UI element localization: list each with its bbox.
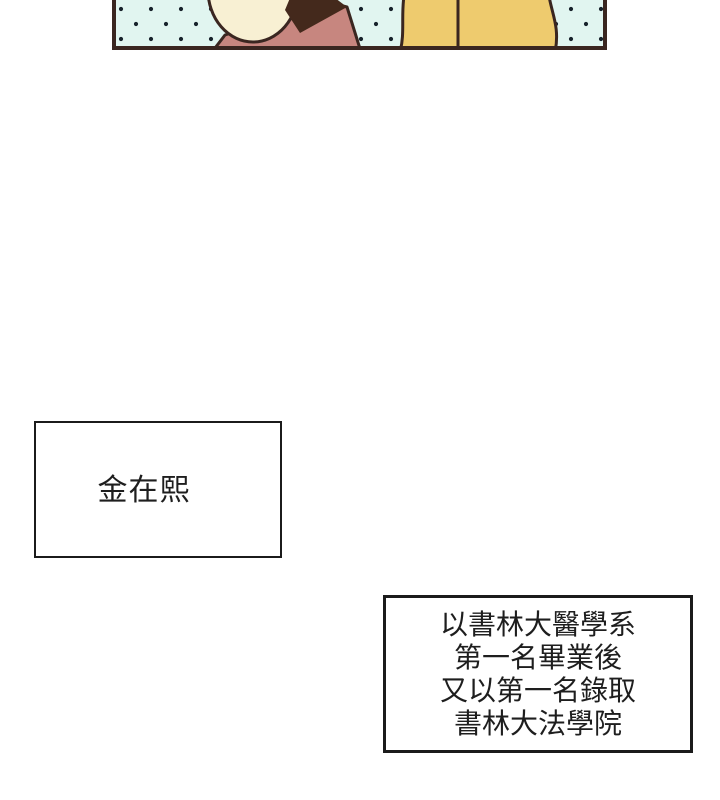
name-caption-box: 金在熙 bbox=[34, 421, 282, 558]
comic-page: 金在熙 以書林大醫學系 第一名畢業後 又以第一名錄取 書林大法學院 bbox=[0, 0, 720, 800]
panel-border-right bbox=[603, 0, 607, 50]
character-name-text: 金在熙 bbox=[98, 465, 191, 509]
panel-border-bottom bbox=[112, 46, 607, 50]
narration-box: 以書林大醫學系 第一名畢業後 又以第一名錄取 書林大法學院 bbox=[383, 595, 693, 753]
narration-line-1: 以書林大醫學系 bbox=[440, 608, 636, 641]
narration-line-2: 第一名畢業後 bbox=[454, 641, 622, 674]
narration-line-4: 書林大法學院 bbox=[454, 707, 622, 740]
blonde-hair-strand-left bbox=[400, 0, 458, 50]
comic-panel-strip bbox=[112, 0, 607, 50]
blonde-hair-strand-right bbox=[458, 0, 557, 50]
panel-illustration bbox=[112, 0, 607, 50]
narration-line-3: 又以第一名錄取 bbox=[440, 674, 636, 707]
panel-border-left bbox=[112, 0, 116, 50]
